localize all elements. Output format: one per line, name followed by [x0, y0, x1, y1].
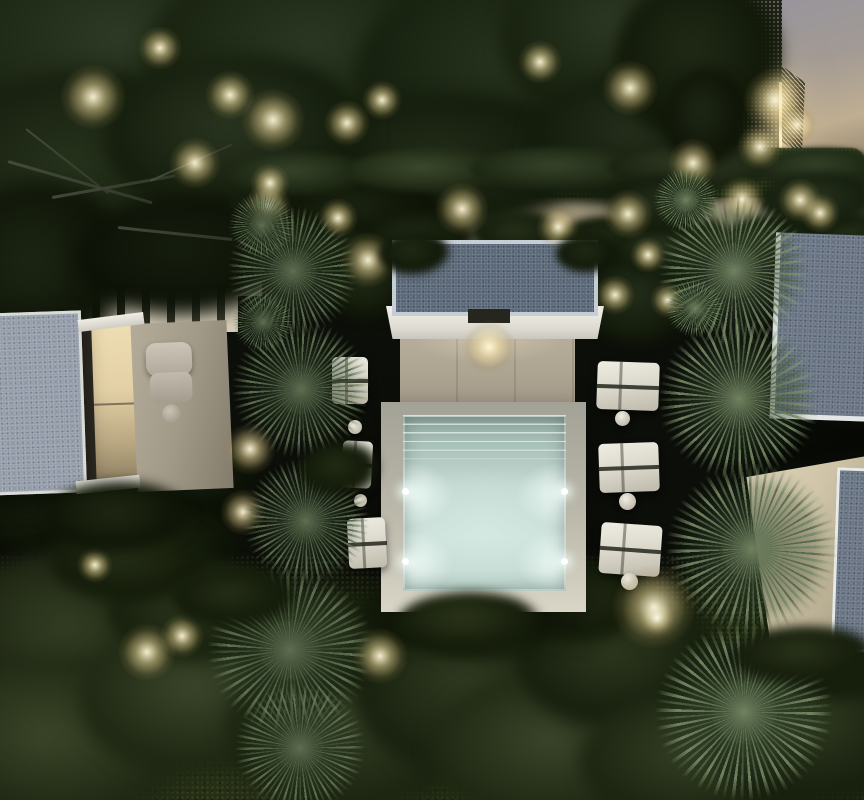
palm-shrub [653, 266, 737, 350]
cushion-seam [618, 362, 623, 410]
side-table [615, 411, 630, 426]
louvered-screen [779, 66, 805, 156]
side-table [354, 494, 367, 507]
hedge-row [236, 148, 864, 198]
tree-trunk [676, 0, 685, 100]
side-table [348, 420, 362, 434]
terrace-chair-seat [150, 372, 193, 404]
foliage-clump [708, 418, 864, 462]
cushion-seam [352, 441, 357, 488]
pavilion-roof [392, 240, 598, 316]
cushion-seam [620, 443, 625, 492]
garden-uplight-glow [650, 282, 686, 318]
pavilion-terrace [400, 334, 575, 409]
side-table [619, 493, 636, 510]
perforated-screen-upper [692, 0, 782, 90]
sun-lounger [332, 357, 368, 404]
led-light-strip [779, 82, 782, 148]
lounger-gap [599, 546, 662, 554]
left-villa-terrace [130, 320, 233, 492]
cushion-seam [345, 357, 348, 404]
lounger-gap [598, 465, 660, 471]
foliage-clump [584, 254, 696, 346]
sun-lounger-pair [596, 361, 660, 411]
swimming-pool [403, 415, 566, 591]
foliage-clump [300, 442, 380, 498]
boardwalk-vertical [229, 193, 262, 299]
lounger-gap [341, 462, 373, 468]
pool-steps [403, 415, 566, 467]
sun-lounger [341, 440, 373, 489]
pavilion-skylight-notch [468, 309, 510, 323]
aerial-villa-night-scene [0, 0, 864, 800]
right-terrace-gravel-inset [831, 467, 864, 652]
garden-uplight-glow [220, 489, 266, 535]
garden-path [252, 192, 864, 241]
terrace-stool [162, 404, 181, 423]
left-villa-roof [0, 310, 87, 495]
sun-lounger-pair [598, 442, 660, 493]
lounger-gap [596, 383, 660, 389]
lounger-gap [331, 379, 369, 383]
right-villa-roof [770, 232, 864, 422]
